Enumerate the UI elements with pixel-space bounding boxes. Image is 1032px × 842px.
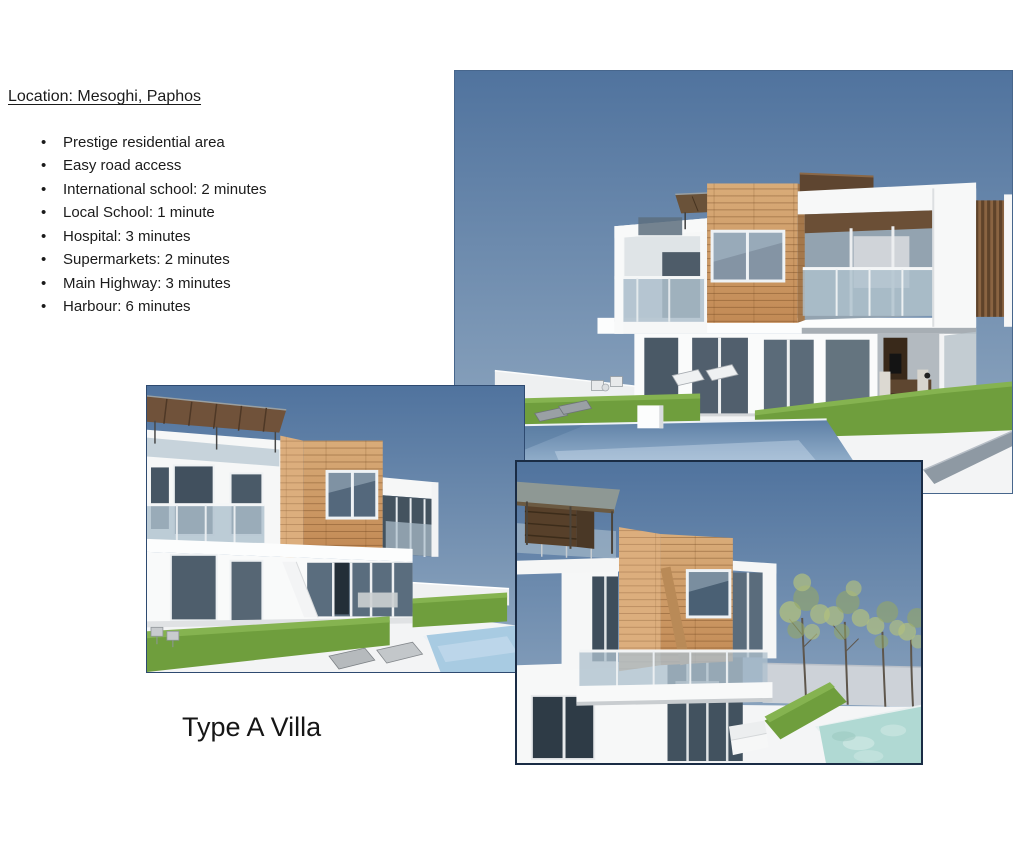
villa-render-main-svg xyxy=(455,71,1012,493)
villa-render-bottom-svg xyxy=(517,462,921,763)
left-balcony-wing xyxy=(614,218,707,333)
villa-render-left xyxy=(146,385,525,673)
front-balcony xyxy=(576,650,772,706)
bullet-item: Local School: 1 minute xyxy=(63,201,266,224)
bullet-item: Prestige residential area xyxy=(63,131,266,154)
hedges xyxy=(413,593,507,628)
villa-render-main xyxy=(454,70,1013,494)
right-balcony-wing xyxy=(798,182,1012,326)
bullet-item: Main Highway: 3 minutes xyxy=(63,272,266,295)
villa-render-bottom xyxy=(515,460,923,765)
bullet-item: Harbour: 6 minutes xyxy=(63,295,266,318)
villa-render-left-svg xyxy=(147,386,524,672)
wood-cladding-cube xyxy=(280,436,382,561)
ground-floor-glass xyxy=(307,563,412,617)
bullet-item: International school: 2 minutes xyxy=(63,178,266,201)
page: Location: Mesoghi, Paphos Prestige resid… xyxy=(0,0,1032,842)
bullet-item: Easy road access xyxy=(63,154,266,177)
bullet-item: Hospital: 3 minutes xyxy=(63,225,266,248)
villa-type-caption: Type A Villa xyxy=(182,711,321,743)
right-balcony-wing xyxy=(383,477,439,556)
bullet-item: Supermarkets: 2 minutes xyxy=(63,248,266,271)
location-heading: Location: Mesoghi, Paphos xyxy=(8,87,201,106)
pool-step xyxy=(637,405,663,428)
location-bullet-list: Prestige residential area Easy road acce… xyxy=(63,131,266,319)
